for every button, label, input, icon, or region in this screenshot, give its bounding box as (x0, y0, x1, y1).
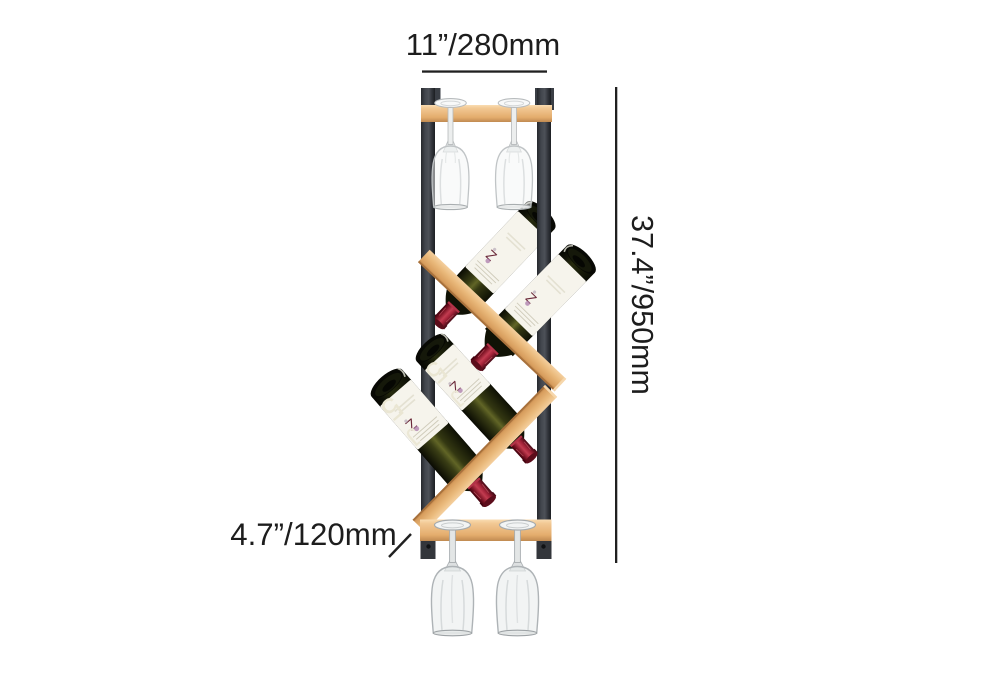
svg-text:11”/280mm: 11”/280mm (406, 27, 561, 62)
svg-text:4.7”/120mm: 4.7”/120mm (230, 517, 396, 552)
svg-text:37.4”/950mm: 37.4”/950mm (625, 215, 659, 395)
